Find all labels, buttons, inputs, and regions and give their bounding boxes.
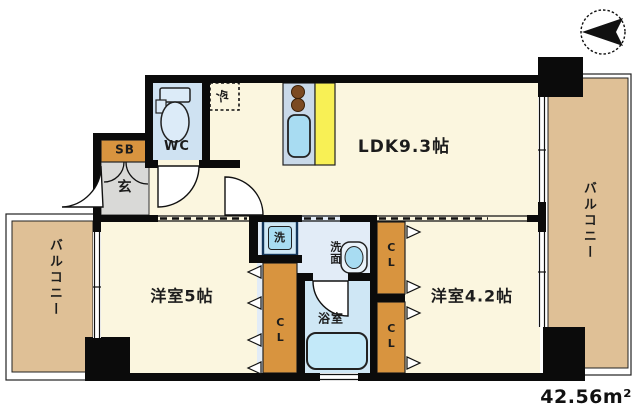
label-bath: 浴室 (318, 313, 344, 326)
floor-plan-drawing (0, 0, 640, 413)
washbasin-icon (341, 242, 367, 273)
label-shoe-box: SB (115, 144, 135, 157)
bathtub-icon (307, 333, 367, 369)
stove-burner-icon (292, 99, 305, 112)
label-wc: WC (164, 140, 190, 154)
room-label-balcony-right: バルコニー (581, 181, 595, 261)
floor-plan: LDK9.3帖 洋室5帖 洋室4.2帖 バルコニー バルコニー WC SB 玄 … (0, 0, 640, 413)
label-closet-west5: CL (274, 316, 286, 346)
floor-area-label: 42.56m² (540, 386, 632, 408)
kitchen-sink-icon (288, 115, 310, 157)
room-label-balcony-left: バルコニー (47, 238, 61, 318)
room-label-west5: 洋室5帖 (150, 289, 213, 306)
label-washer: 洗 (274, 232, 286, 244)
label-closet-west42-top: CL (385, 241, 397, 271)
room-label-west42: 洋室4.2帖 (431, 289, 513, 306)
label-washroom: 洗面 (329, 241, 341, 265)
stove-burner-icon (292, 86, 305, 99)
kitchen-counter (283, 83, 335, 165)
room-label-ldk: LDK9.3帖 (358, 139, 450, 157)
north-arrow-icon (581, 10, 625, 54)
label-entrance: 玄 (118, 181, 133, 196)
label-closet-west42-bottom: CL (385, 322, 397, 352)
